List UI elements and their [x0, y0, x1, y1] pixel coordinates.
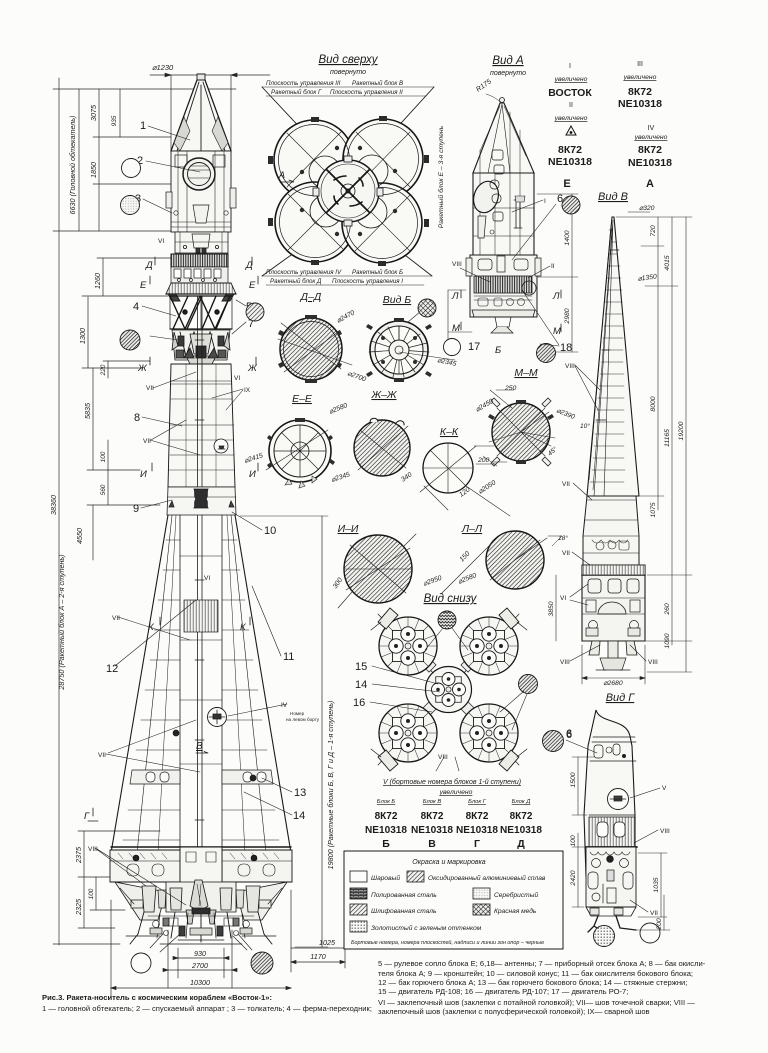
svg-text:NЕ10318: NЕ10318: [456, 825, 498, 836]
svg-text:8: 8: [134, 412, 140, 424]
svg-text:220: 220: [100, 364, 107, 376]
svg-text:увеличено: увеличено: [554, 76, 588, 83]
svg-text:NЕ10318: NЕ10318: [628, 157, 672, 169]
svg-text:Рис.3. Ракета-носитель с ко: Рис.3. Ракета-носитель с космическим кор…: [42, 993, 272, 1002]
svg-text:Золотистый с зеленым оттенк: Золотистый с зеленым оттенком: [371, 924, 482, 932]
svg-text:4550: 4550: [75, 528, 84, 544]
svg-text:VI: VI: [158, 238, 164, 245]
svg-text:I: I: [544, 198, 546, 205]
svg-text:NЕ10318: NЕ10318: [548, 156, 592, 168]
svg-text:1850: 1850: [89, 162, 98, 178]
svg-text:Вид сверху: Вид сверху: [318, 54, 378, 66]
svg-text:1300: 1300: [78, 328, 87, 344]
svg-text:Окраска и маркировка: Окраска и маркировка: [412, 859, 486, 866]
svg-text:8К72: 8К72: [510, 811, 533, 822]
svg-text:III: III: [637, 61, 643, 68]
svg-text:И–И: И–И: [338, 523, 359, 535]
svg-text:Ракетный блок Г: Ракетный блок Г: [271, 89, 322, 96]
svg-text:⌀2470: ⌀2470: [336, 309, 356, 324]
svg-text:8К72: 8К72: [375, 811, 398, 822]
svg-text:⌀1230: ⌀1230: [152, 63, 174, 72]
svg-text:II: II: [551, 263, 555, 270]
svg-text:R175: R175: [475, 78, 493, 93]
svg-text:Блок В: Блок В: [423, 799, 442, 805]
svg-text:18: 18: [560, 342, 572, 354]
svg-text:1035: 1035: [653, 877, 660, 892]
svg-text:В: В: [428, 838, 436, 850]
svg-text:Вид Б: Вид Б: [383, 294, 412, 306]
svg-text:VIII: VIII: [660, 828, 670, 835]
svg-text:К–К: К–К: [440, 426, 459, 438]
svg-text:10300: 10300: [190, 978, 210, 987]
svg-text:М: М: [452, 323, 460, 334]
svg-text:увеличено: увеличено: [623, 74, 657, 81]
svg-text:5 — рулевое сопло блока Е; 6,1: 5 — рулевое сопло блока Е; 6,18— антенны…: [378, 959, 706, 968]
svg-text:Ж: Ж: [137, 363, 148, 374]
svg-text:М–М: М–М: [514, 367, 538, 379]
svg-text:260: 260: [664, 603, 671, 616]
svg-text:38360: 38360: [49, 495, 58, 515]
svg-text:2375: 2375: [74, 846, 83, 864]
svg-text:6: 6: [566, 728, 572, 740]
svg-text:VI: VI: [234, 375, 240, 382]
svg-text:13: 13: [294, 787, 306, 799]
svg-text:В: В: [196, 741, 203, 752]
svg-text:1400: 1400: [564, 230, 571, 245]
svg-text:I: I: [569, 63, 571, 70]
svg-text:8К72: 8К72: [638, 144, 662, 156]
svg-text:⌀320: ⌀320: [639, 205, 655, 212]
svg-text:К: К: [240, 622, 247, 633]
svg-text:VII: VII: [562, 481, 570, 488]
svg-text:15: 15: [355, 661, 367, 673]
svg-text:Плоскость управления II: Плоскость управления II: [330, 89, 403, 96]
svg-text:теля блока А; 9 — кронштейн;: теля блока А; 9 — кронштейн; 10 — силово…: [378, 969, 693, 978]
svg-text:560: 560: [100, 484, 107, 495]
svg-text:Д–Д: Д–Д: [300, 291, 322, 303]
svg-text:8К72: 8К72: [421, 811, 444, 822]
svg-text:720: 720: [650, 225, 657, 237]
svg-text:2980: 2980: [564, 308, 571, 324]
svg-text:заклепочный шов (заклепки с по: заклепочный шов (заклепки с полусферичес…: [378, 1007, 650, 1016]
svg-text:200: 200: [656, 918, 663, 931]
svg-text:VII: VII: [143, 438, 151, 445]
svg-text:8К72: 8К72: [466, 811, 489, 822]
svg-text:8К72: 8К72: [558, 144, 582, 156]
svg-text:100: 100: [100, 451, 107, 462]
svg-text:NЕ10318: NЕ10318: [500, 825, 542, 836]
svg-text:1090: 1090: [664, 633, 671, 648]
svg-text:1 — головной обтекатель; 2 — с: 1 — головной обтекатель; 2 — спускаемый …: [42, 1004, 372, 1013]
svg-text:Д: Д: [145, 260, 153, 271]
svg-text:VIII: VIII: [438, 754, 448, 761]
svg-text:2420: 2420: [570, 870, 577, 886]
svg-text:VII: VII: [98, 752, 106, 759]
svg-text:Д: Д: [517, 838, 525, 850]
svg-text:Е–Е: Е–Е: [292, 393, 313, 405]
svg-text:Вид снизу: Вид снизу: [424, 593, 478, 605]
svg-text:6630 (Головной обтекатель): 6630 (Головной обтекатель): [68, 116, 77, 215]
svg-text:4015: 4015: [664, 255, 671, 270]
svg-text:15 — двигатель РД-108; 16 — д: 15 — двигатель РД-108; 16 — двигатель РД…: [378, 987, 628, 996]
svg-text:VII: VII: [146, 385, 154, 392]
svg-text:V (бортовые номера блоков 1-й: V (бортовые номера блоков 1-й ступени): [383, 778, 521, 786]
svg-text:IV: IV: [648, 125, 655, 132]
svg-text:повернуто: повернуто: [490, 70, 526, 77]
svg-text:Е: Е: [563, 178, 570, 190]
svg-text:на левом борту: на левом борту: [286, 717, 320, 722]
svg-text:Г: Г: [84, 811, 90, 822]
svg-text:10: 10: [264, 525, 276, 537]
svg-text:11: 11: [283, 651, 294, 663]
svg-text:1025: 1025: [319, 938, 336, 947]
svg-text:⌀2415: ⌀2415: [243, 452, 264, 465]
svg-text:Ракетный блок Е – 3-я ступень: Ракетный блок Е – 3-я ступень: [437, 125, 445, 228]
svg-text:VI: VI: [560, 595, 566, 602]
svg-text:⌀2450: ⌀2450: [475, 398, 495, 414]
svg-text:Оксидированный алюминиевый с: Оксидированный алюминиевый сплав: [428, 874, 546, 882]
svg-text:150: 150: [458, 550, 471, 563]
svg-text:Блок Б: Блок Б: [377, 799, 396, 805]
svg-text:4: 4: [133, 301, 139, 313]
svg-text:2325: 2325: [74, 898, 83, 916]
svg-text:VIII: VIII: [565, 363, 575, 370]
svg-text:VII: VII: [562, 550, 570, 557]
svg-text:Л: Л: [451, 291, 459, 302]
svg-text:300: 300: [332, 577, 344, 590]
svg-text:М: М: [553, 326, 561, 337]
svg-text:250: 250: [504, 385, 517, 392]
svg-text:⌀2345: ⌀2345: [330, 471, 351, 484]
svg-text:Красная медь: Красная медь: [494, 907, 537, 915]
svg-text:⌀2700: ⌀2700: [346, 370, 367, 383]
svg-text:200: 200: [477, 457, 490, 464]
svg-text:И: И: [140, 469, 147, 480]
svg-text:ВОСТОК: ВОСТОК: [548, 87, 592, 99]
svg-text:Ракетный блок Б: Ракетный блок Б: [352, 269, 403, 276]
svg-text:Б: Б: [495, 345, 501, 356]
svg-text:1260: 1260: [93, 273, 102, 289]
svg-text:Номер: Номер: [290, 711, 305, 716]
svg-text:Блок Д: Блок Д: [512, 799, 531, 805]
svg-text:⌀2050: ⌀2050: [477, 479, 497, 495]
svg-text:VIII: VIII: [452, 261, 462, 268]
svg-text:Полированная сталь: Полированная сталь: [371, 892, 437, 899]
svg-text:28750 (Ракетный блок А – 2-я с: 28750 (Ракетный блок А – 2-я ступень): [57, 554, 66, 690]
svg-text:9: 9: [133, 503, 139, 515]
svg-text:5835: 5835: [83, 402, 92, 419]
svg-text:17: 17: [468, 341, 480, 353]
svg-text:NЕ10318: NЕ10318: [411, 825, 453, 836]
svg-text:Шлифованная сталь: Шлифованная сталь: [371, 908, 437, 915]
svg-text:Серебристый: Серебристый: [494, 891, 538, 899]
svg-text:⌀2390: ⌀2390: [555, 407, 576, 421]
svg-text:Ж–Ж: Ж–Ж: [370, 389, 397, 401]
svg-text:12 — бак горючего блока А; 13: 12 — бак горючего блока А; 13 — бак горю…: [378, 978, 687, 987]
svg-text:IX: IX: [244, 387, 251, 394]
svg-text:930: 930: [194, 949, 206, 958]
svg-text:повернуто: повернуто: [330, 69, 366, 76]
svg-text:VIII: VIII: [88, 846, 98, 853]
svg-text:IV: IV: [281, 702, 288, 709]
svg-text:8000: 8000: [650, 396, 657, 411]
svg-text:V: V: [662, 785, 667, 792]
svg-text:Вид В: Вид В: [598, 191, 628, 203]
svg-text:18°: 18°: [558, 534, 568, 542]
svg-text:Ракетный блок В: Ракетный блок В: [352, 80, 403, 87]
svg-text:И: И: [249, 469, 256, 480]
svg-text:увеличено: увеличено: [554, 115, 588, 122]
svg-text:VI — заклепочный шов (заклепки: VI — заклепочный шов (заклепки с потайно…: [378, 998, 695, 1007]
svg-text:14: 14: [293, 810, 305, 822]
svg-text:Плоскость управления IV: Плоскость управления IV: [266, 269, 342, 276]
svg-text:3850: 3850: [548, 601, 555, 616]
svg-text:10°: 10°: [580, 422, 590, 430]
svg-text:1: 1: [140, 120, 146, 132]
svg-text:100: 100: [88, 888, 95, 899]
svg-text:увеличено: увеличено: [634, 134, 668, 141]
svg-text:VIII: VIII: [648, 659, 658, 666]
svg-text:VII: VII: [650, 910, 658, 917]
svg-text:Бортовые номера, номера плоско: Бортовые номера, номера плоскостей, надп…: [351, 939, 544, 946]
svg-text:Л: Л: [552, 291, 560, 302]
svg-text:Л–Л: Л–Л: [461, 523, 483, 535]
svg-text:Б: Б: [382, 838, 390, 850]
svg-text:NЕ10318: NЕ10318: [618, 98, 662, 110]
svg-text:16: 16: [353, 697, 365, 709]
svg-text:340: 340: [400, 471, 413, 483]
svg-text:Плоскость управления I: Плоскость управления I: [332, 278, 403, 285]
svg-text:1075: 1075: [650, 502, 657, 517]
svg-text:II: II: [569, 102, 573, 109]
svg-text:Г: Г: [474, 838, 480, 850]
svg-text:⌀2950: ⌀2950: [422, 575, 443, 588]
svg-text:VII: VII: [112, 615, 120, 622]
svg-text:Ракетный блок Д: Ракетный блок Д: [270, 278, 322, 285]
svg-text:VI: VI: [204, 575, 210, 582]
svg-text:увеличено: увеличено: [439, 789, 473, 796]
svg-text:1170: 1170: [310, 952, 325, 961]
svg-text:935: 935: [111, 115, 118, 126]
svg-text:100: 100: [570, 835, 577, 847]
svg-text:⌀2680: ⌀2680: [603, 680, 622, 687]
svg-text:VIII: VIII: [560, 659, 570, 666]
svg-text:Вид А: Вид А: [492, 55, 524, 67]
svg-text:19800 (Ракетные блоки Б, В, Г: 19800 (Ракетные блоки Б, В, Г и Д – 1-я …: [326, 701, 335, 870]
svg-text:NЕ10318: NЕ10318: [365, 825, 407, 836]
svg-text:Е: Е: [140, 280, 147, 291]
svg-text:3075: 3075: [89, 104, 98, 121]
svg-text:8К72: 8К72: [628, 86, 652, 98]
svg-text:⌀2345: ⌀2345: [437, 357, 457, 368]
svg-text:Блок Г: Блок Г: [468, 799, 487, 805]
svg-text:⌀2580: ⌀2580: [457, 572, 478, 586]
svg-text:45°: 45°: [546, 445, 559, 458]
svg-text:⌀1350: ⌀1350: [637, 273, 657, 283]
svg-text:⌀2580: ⌀2580: [328, 402, 349, 416]
svg-text:Плоскость управления III: Плоскость управления III: [266, 80, 341, 87]
svg-text:14: 14: [355, 679, 367, 691]
svg-text:11165: 11165: [664, 429, 671, 447]
svg-text:1500: 1500: [570, 772, 577, 787]
svg-text:Е: Е: [249, 280, 256, 291]
svg-text:2700: 2700: [191, 961, 208, 970]
svg-text:Вид Г: Вид Г: [606, 692, 636, 704]
svg-text:19200: 19200: [678, 421, 685, 440]
svg-text:Шаровый: Шаровый: [371, 874, 400, 882]
svg-text:А: А: [278, 170, 285, 180]
svg-text:А: А: [646, 178, 654, 190]
